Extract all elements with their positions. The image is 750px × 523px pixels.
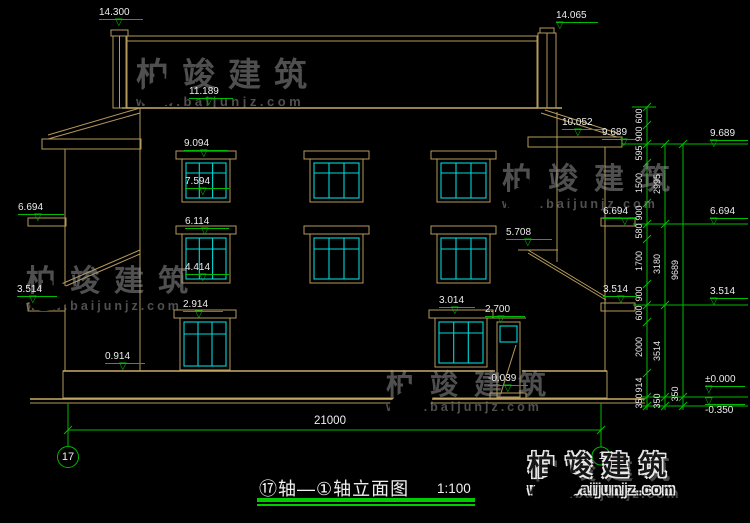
- elevation-triangle-icon: ▽: [195, 310, 203, 320]
- elevation-label: 10.052▽: [562, 118, 593, 128]
- elevation-triangle-icon: ▽: [200, 149, 208, 159]
- elevation-triangle-icon: ▽: [705, 397, 713, 407]
- dim-value-label: 600: [634, 295, 644, 331]
- elevation-label: 0.914▽: [105, 352, 130, 362]
- dim-value-label: 3514: [652, 333, 662, 369]
- elevation-triangle-icon: ▽: [620, 138, 628, 148]
- elevation-triangle-icon: ▽: [119, 362, 127, 372]
- window: [429, 310, 493, 367]
- elevation-label: 9.689▽: [710, 129, 735, 139]
- dim-value-label: 1700: [634, 243, 644, 279]
- elevation-triangle-icon: ▽: [524, 238, 532, 248]
- elevation-label: -0.039▽: [488, 374, 516, 384]
- elevation-triangle-icon: ▽: [621, 217, 629, 227]
- elevation-triangle-icon: ▽: [199, 187, 207, 197]
- elevation-label: 6.694▽: [603, 207, 628, 217]
- window: [304, 226, 369, 283]
- axis-dimension: [58, 403, 611, 468]
- elevation-triangle-icon: ▽: [29, 295, 37, 305]
- window: [431, 226, 496, 283]
- elevation-label: 6.694▽: [18, 203, 43, 213]
- elevation-triangle-icon: ▽: [115, 18, 123, 28]
- dim-value-label: 350: [670, 376, 680, 412]
- title-underline: [257, 504, 475, 506]
- elevation-triangle-icon: ▽: [451, 306, 459, 316]
- elevation-drawing-canvas: 柏竣建筑 www.baijunjz.com 柏竣建筑 www.baijunjz.…: [0, 0, 750, 523]
- elevation-label: 3.514▽: [710, 287, 735, 297]
- elevation-label: 14.300▽: [99, 8, 130, 18]
- elevation-label: 9.094▽: [184, 139, 209, 149]
- elevation-triangle-icon: ▽: [205, 97, 213, 107]
- elevation-label: ±0.000▽: [705, 375, 736, 385]
- elevation-triangle-icon: ▽: [710, 297, 718, 307]
- ground-line: [30, 399, 645, 403]
- elevation-triangle-icon: ▽: [574, 128, 582, 138]
- total-width-dimension: 21000: [295, 415, 365, 427]
- elevation-label: 5.708▽: [506, 228, 531, 238]
- elevation-label: -0.350▽: [705, 397, 733, 407]
- elevation-triangle-icon: ▽: [504, 384, 512, 394]
- elevation-triangle-icon: ▽: [710, 217, 718, 227]
- elevation-label: 7.594▽: [185, 177, 210, 187]
- window: [304, 151, 369, 202]
- left-pent-roof: [42, 108, 141, 149]
- elevation-label: 3.514▽: [17, 285, 42, 295]
- right-gable-post: [538, 28, 556, 108]
- elevation-triangle-icon: ▽: [201, 227, 209, 237]
- title-underline: [257, 498, 475, 502]
- main-roof: [122, 36, 562, 108]
- elevation-triangle-icon: ▽: [617, 295, 625, 305]
- elevation-label: 4.414▽: [185, 263, 210, 273]
- dim-value-label: 3180: [652, 246, 662, 282]
- dim-value-label: 2995: [652, 166, 662, 202]
- elevation-triangle-icon: ▽: [710, 139, 718, 149]
- axis-number-17: 17: [58, 451, 78, 463]
- elevation-triangle-icon: ▽: [556, 21, 564, 31]
- elevation-label: 3.514▽: [603, 285, 628, 295]
- elevation-label: 11.189▽: [189, 87, 219, 97]
- dimension-chain: [64, 103, 748, 434]
- dim-value-label: 2000: [634, 329, 644, 365]
- axis-number-1: 1: [594, 450, 609, 462]
- elevation-triangle-icon: ▽: [34, 213, 42, 223]
- elevation-label: 6.114▽: [185, 217, 209, 227]
- elevation-label: 3.014▽: [439, 296, 464, 306]
- elevation-label: 14.065▽: [556, 11, 587, 21]
- window: [431, 151, 496, 202]
- elevation-triangle-icon: ▽: [705, 385, 713, 395]
- window: [174, 310, 236, 370]
- chimney: [111, 30, 128, 108]
- dim-value-label: 9689: [670, 252, 680, 288]
- dim-value-label: 350: [652, 383, 662, 419]
- drawing-scale: 1:100: [437, 481, 471, 496]
- dim-value-label: 350: [634, 383, 644, 419]
- elevation-label: 2.914▽: [183, 300, 208, 310]
- elevation-label: 2.700▽: [485, 305, 510, 315]
- elevation-triangle-icon: ▽: [199, 273, 207, 283]
- elevation-label: 9.689▽: [602, 128, 627, 138]
- elevation-label: 6.694▽: [710, 207, 735, 217]
- ledges: [28, 218, 635, 311]
- elevation-triangle-icon: ▽: [497, 315, 505, 325]
